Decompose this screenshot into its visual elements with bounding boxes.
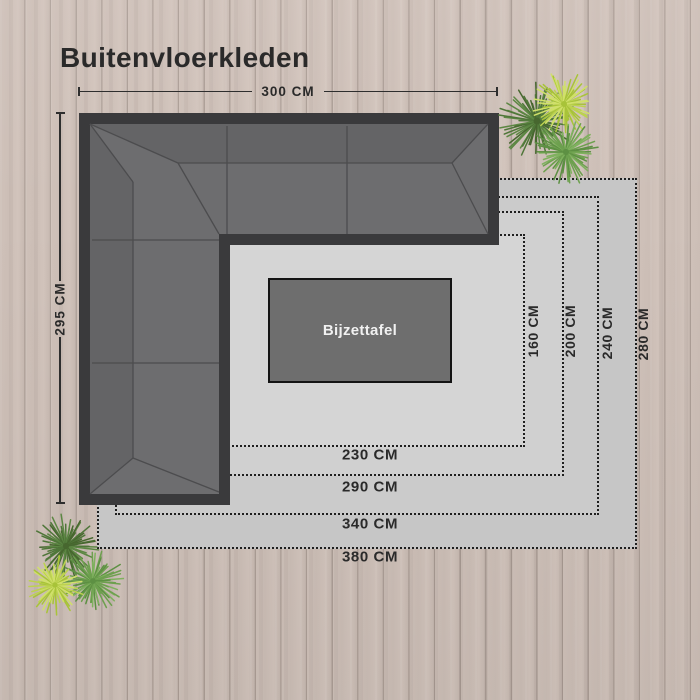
sofa-height-label: 295 CM (53, 282, 68, 335)
rug-width-label-340: 340 CM (342, 516, 398, 533)
side-table-label: Bijzettafel (323, 322, 397, 339)
dimension-line (324, 91, 497, 93)
patio-rug-size-diagram: Buitenvloerkleden 300 CM 295 CM (0, 0, 700, 700)
rug-height-label-240: 240 CM (599, 307, 615, 360)
dimension-line (59, 113, 61, 281)
sofa-width-dimension: 300 CM (78, 84, 498, 99)
dimension-line (80, 91, 253, 93)
rug-height-label-280: 280 CM (635, 308, 651, 361)
sofa-width-label: 300 CM (252, 84, 323, 99)
rug-width-label-230: 230 CM (342, 447, 398, 464)
side-table: Bijzettafel (268, 278, 452, 383)
dimension-tick (56, 502, 65, 504)
potted-plant-top-right (490, 70, 645, 195)
potted-plant-bottom-left (20, 505, 150, 630)
plant-frond-mid-green (63, 552, 124, 610)
rug-width-label-380: 380 CM (342, 549, 398, 566)
rug-height-label-200: 200 CM (562, 305, 578, 358)
dimension-line (59, 337, 61, 503)
rug-width-label-290: 290 CM (342, 479, 398, 496)
rug-height-label-160: 160 CM (525, 305, 541, 358)
